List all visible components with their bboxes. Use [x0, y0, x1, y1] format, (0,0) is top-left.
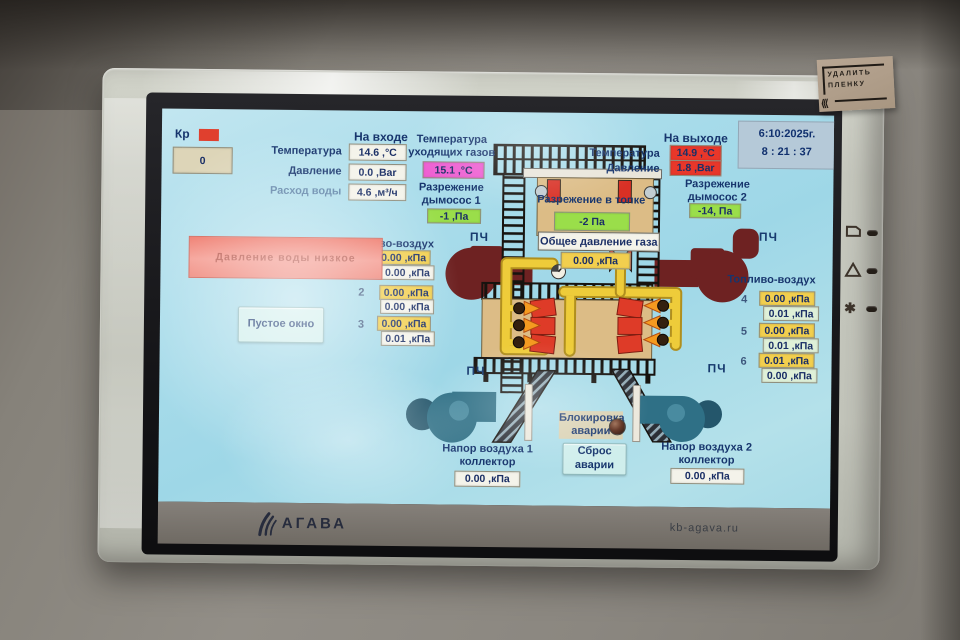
fuel-air-6-setpoint[interactable]: 0.01 ,кПа — [759, 353, 815, 369]
vfd-label: ПЧ — [470, 230, 489, 244]
datetime-display: 6:10:2025г. 8 : 21 : 37 — [738, 121, 835, 170]
hmi-panel: Кр 0 На входе Температура 14.6 ,°C Давле… — [97, 68, 884, 570]
inlet-flow-label: Расход воды — [223, 184, 341, 198]
status-led-column: ✱ — [844, 224, 881, 338]
fuel-air-4-actual: 0.01 ,кПа — [763, 306, 819, 322]
valve-label: Кр — [175, 127, 190, 141]
sticker-arrows-icon: ⟨⟨⟨ — [821, 99, 827, 110]
draft-fan2-value: -14, Па — [689, 203, 741, 219]
time-text: 8 : 21 : 37 — [739, 146, 834, 159]
fuel-air-3-actual: 0.01 ,кПа — [381, 331, 435, 347]
alarm-banner: Давление воды низкое — [188, 236, 382, 280]
outlet-temp-value: 14.9 ,°C — [670, 145, 722, 162]
fuel-air-1-actual: 0.00 ,кПа — [380, 265, 434, 281]
fuel-air-1-setpoint[interactable]: 0.00 ,кПа — [377, 250, 431, 266]
alarm-reset-button[interactable]: Сброс аварии — [562, 443, 626, 476]
total-gas-label: Общее давление газа — [538, 231, 660, 251]
fuel-air-5-actual: 0.01 ,кПа — [763, 338, 819, 354]
air-header1-label: Напор воздуха 1 коллектор — [441, 442, 533, 469]
flue-gas-temp-value: 15.1 ,°C — [422, 161, 484, 179]
furnace-draft-label: Разрежение в топке — [527, 193, 655, 207]
outlet-temp-label: Температура — [570, 147, 660, 161]
furnace-draft-value: -2 Па — [554, 212, 630, 232]
protective-film-glare — [100, 98, 149, 528]
inlet-pressure-label: Давление — [223, 164, 341, 178]
flue-gas-temp-label: Температура уходящих газов — [390, 133, 514, 160]
support-pole — [633, 385, 641, 441]
warning-triangle-icon — [844, 262, 861, 278]
burner-index: 6 — [741, 356, 747, 368]
photo-of-hmi-cabinet: Кр 0 На входе Температура 14.6 ,°C Давле… — [0, 0, 960, 640]
outlet-header: На выходе — [650, 131, 728, 146]
fuel-air-3-setpoint[interactable]: 0.00 ,кПа — [377, 316, 431, 332]
fuel-air-4-setpoint[interactable]: 0.00 ,кПа — [759, 291, 815, 307]
draft-fan2-label: Разрежение дымосос 2 — [679, 178, 755, 205]
panel-brand-strip: АГАВА kb-agava.ru — [158, 502, 830, 551]
hmi-screen: Кр 0 На входе Температура 14.6 ,°C Давле… — [158, 109, 834, 509]
support-pole — [525, 384, 533, 440]
vfd-label: ПЧ — [466, 364, 485, 378]
draft-fan1-value: -1 ,Па — [427, 208, 481, 224]
burner-index: 3 — [358, 319, 364, 331]
burner-index: 5 — [741, 326, 747, 338]
inlet-pressure-value: 0.0 ,Bar — [348, 164, 406, 182]
fuel-air-right-header: Топливо-воздух — [727, 273, 827, 287]
sticker-border — [822, 67, 825, 95]
draft-fan1-label: Разрежение дымосос 1 — [398, 181, 504, 208]
total-gas-value: 0.00 ,кПа — [561, 252, 631, 270]
blower-fan-1 — [406, 391, 497, 443]
asterisk-status-icon: ✱ — [844, 300, 856, 317]
burner-index: 2 — [358, 287, 364, 299]
status-led — [866, 268, 877, 274]
fuel-air-5-setpoint[interactable]: 0.00 ,кПа — [759, 323, 815, 339]
agava-logo-icon — [256, 511, 278, 537]
fuel-air-2-actual: 0.00 ,кПа — [380, 299, 434, 315]
remove-film-sticker: УДАЛИТЬ ПЛЕНКУ ⟨⟨⟨ — [817, 56, 896, 112]
brand-name: АГАВА — [282, 515, 347, 533]
status-led — [866, 306, 877, 312]
inlet-temp-label: Температура — [224, 144, 342, 158]
sticker-arrow-line — [835, 97, 887, 102]
air-header2-label: Напор воздуха 2 коллектор — [660, 441, 752, 468]
date-text: 6:10:2025г. — [739, 128, 834, 141]
alarm-lock-indicator[interactable] — [609, 418, 626, 435]
wall-shadow — [920, 0, 960, 640]
burner-index: 4 — [741, 294, 747, 306]
air-header1-value: 0.00 ,кПа — [454, 471, 520, 488]
air-header2-value: 0.00 ,кПа — [670, 468, 744, 485]
empty-window-button[interactable]: Пустое окно — [238, 306, 324, 343]
brand-website: kb-agava.ru — [670, 522, 739, 535]
outlet-pressure-label: Давление — [570, 162, 660, 176]
display-status-icon — [845, 224, 862, 239]
burners-left — [513, 298, 556, 354]
valve-alarm-chip — [199, 129, 219, 141]
screen-bezel: Кр 0 На входе Температура 14.6 ,°C Давле… — [142, 92, 843, 561]
vfd-label: ПЧ — [759, 230, 778, 244]
vfd-label: ПЧ — [707, 361, 726, 375]
status-led — [867, 230, 878, 236]
outlet-pressure-value: 1.8 ,Bar — [670, 160, 722, 177]
fuel-air-6-actual: 0.00 ,кПа — [761, 368, 817, 384]
